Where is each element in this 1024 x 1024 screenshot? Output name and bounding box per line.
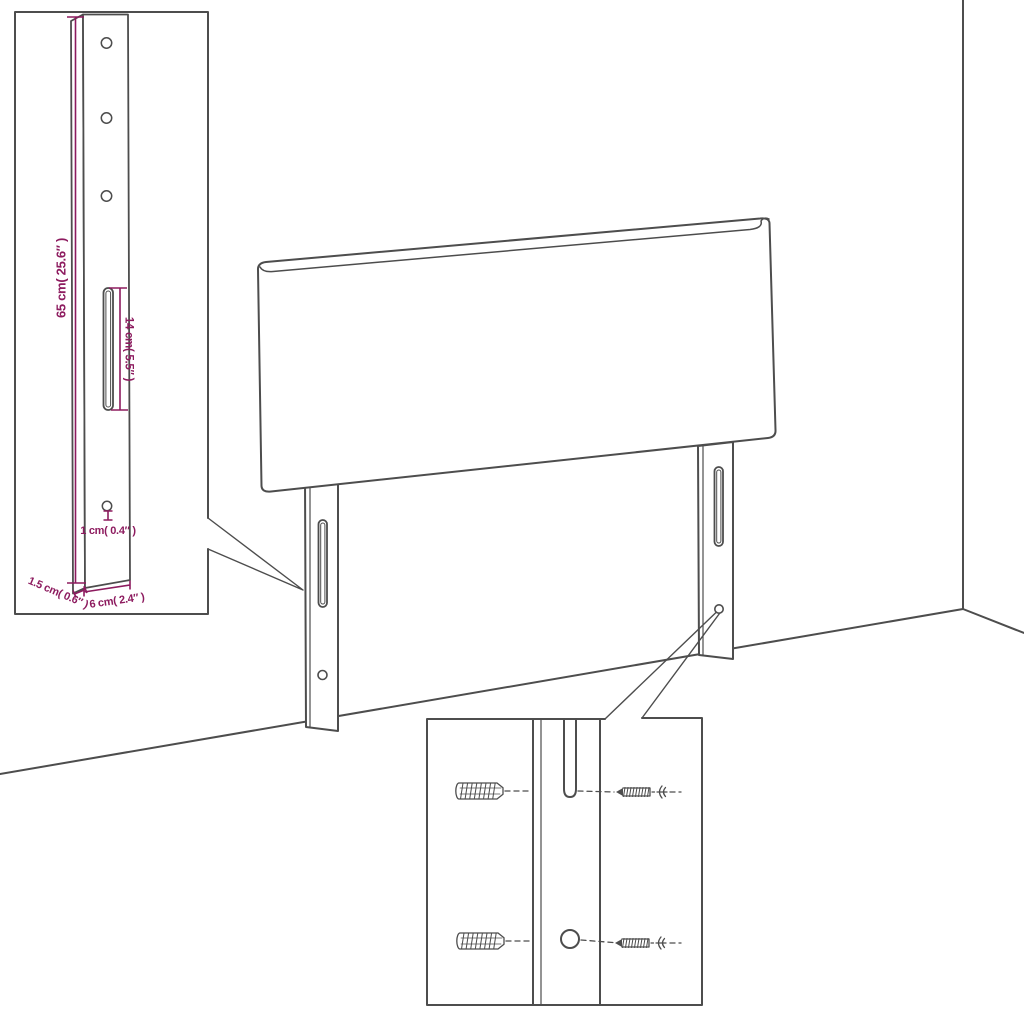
bracket-drawing — [71, 15, 130, 594]
floor-line-right — [963, 609, 1024, 633]
headboard-dimension-diagram: 65 cm( 25.6″ ) 14 cm( 5.5″ ) 1 cm( 0.4″ … — [0, 0, 1024, 1024]
dimension-slot-label: 14 cm( 5.5″ ) — [123, 317, 135, 382]
dimension-height-label: 65 cm( 25.6″ ) — [54, 238, 69, 318]
headboard-leg-left — [305, 474, 338, 731]
hardware-detail-inset — [427, 613, 720, 1006]
bracket-inset-callout-lines — [208, 518, 303, 590]
headboard-leg-right — [698, 442, 733, 659]
dimension-hole-label: 1 cm( 0.4″ ) — [80, 525, 136, 537]
diagram-canvas: 65 cm( 25.6″ ) 14 cm( 5.5″ ) 1 cm( 0.4″ … — [0, 0, 1024, 1024]
